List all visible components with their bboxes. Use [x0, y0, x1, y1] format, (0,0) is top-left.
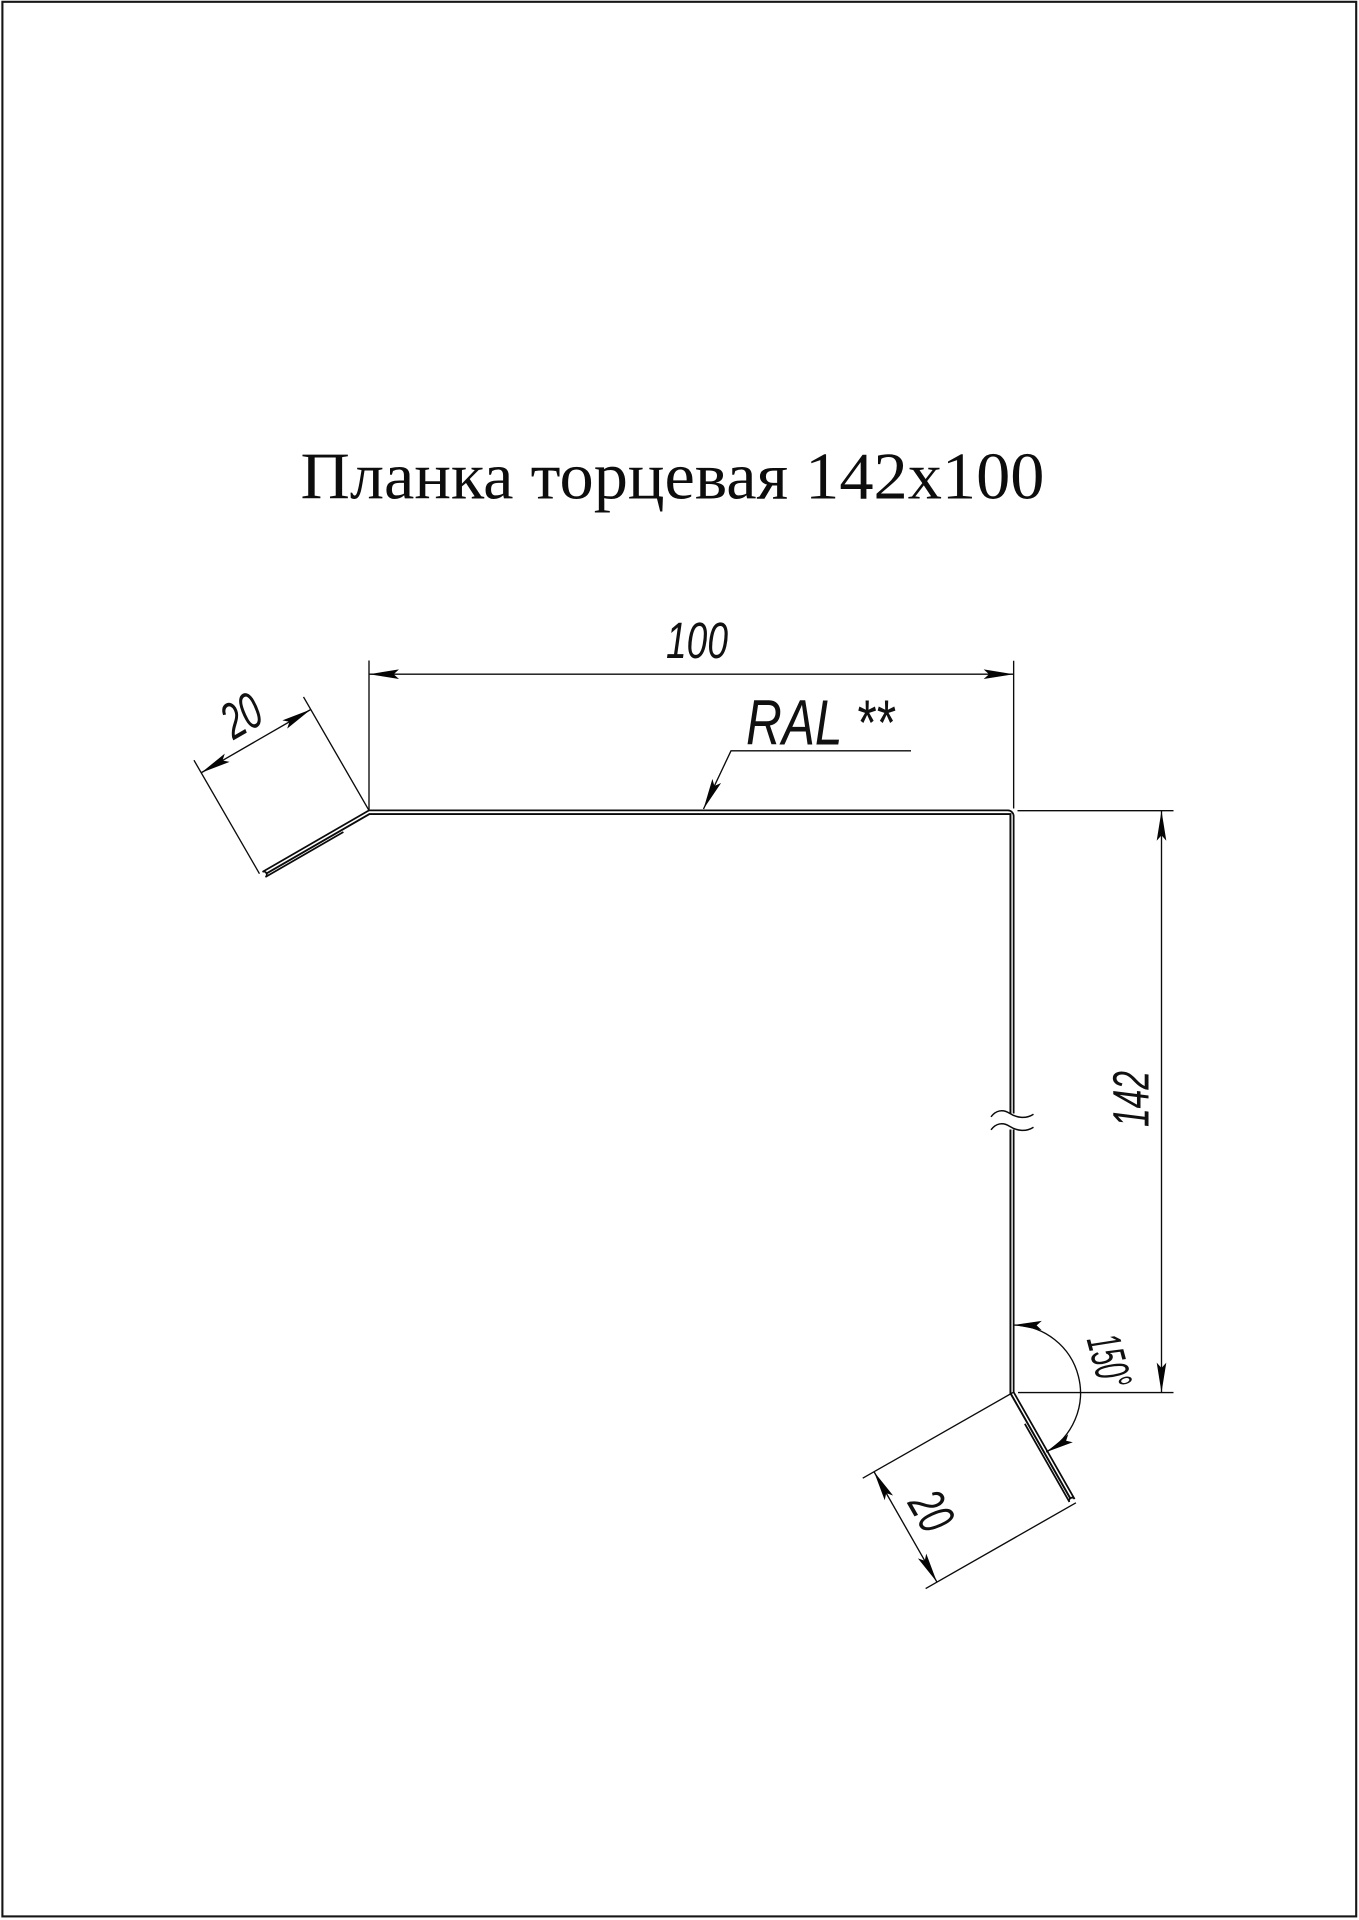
svg-text:100: 100: [666, 612, 728, 669]
svg-text:150°: 150°: [1076, 1329, 1141, 1395]
svg-text:RAL **: RAL **: [746, 687, 896, 759]
svg-text:20: 20: [210, 681, 272, 750]
svg-text:142: 142: [1103, 1071, 1160, 1127]
svg-text:Планка торцевая 142х100: Планка торцевая 142х100: [301, 440, 1045, 514]
svg-text:20: 20: [897, 1480, 966, 1542]
